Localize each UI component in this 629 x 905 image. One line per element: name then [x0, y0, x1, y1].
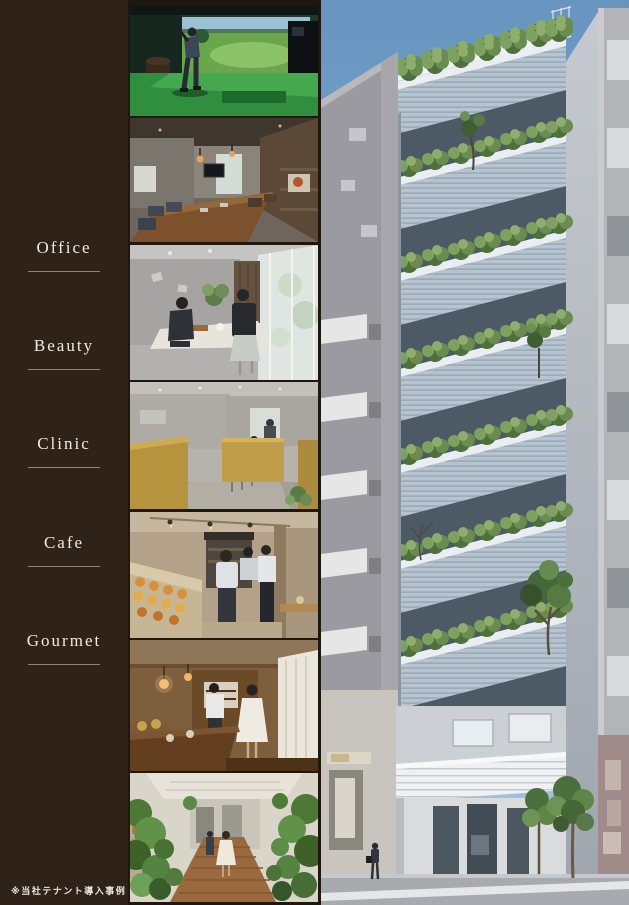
photo-green-entrance — [130, 773, 318, 902]
category-label-office: Office — [0, 237, 128, 259]
entrance-illustration — [130, 773, 318, 902]
building-rendering-illustration — [321, 0, 629, 905]
sidebar-item-gourmet: Gourmet — [0, 630, 128, 665]
photo-office-meeting-room — [130, 118, 318, 242]
meeting-room-illustration — [130, 118, 318, 242]
street — [321, 874, 629, 905]
tenant-photo-strip — [128, 0, 321, 905]
category-label-clinic: Clinic — [0, 433, 128, 455]
sidebar-item-beauty: Beauty — [0, 335, 128, 370]
sidebar-item-cafe: Cafe — [0, 532, 128, 567]
category-divider — [28, 467, 100, 468]
beauty-salon-illustration — [130, 245, 318, 380]
golf-simulator-illustration — [130, 5, 318, 116]
right-building — [598, 8, 629, 905]
category-divider — [28, 664, 100, 665]
sidebar-item-office: Office — [0, 237, 128, 272]
sidebar-item-clinic: Clinic — [0, 433, 128, 468]
bakery-illustration — [130, 512, 318, 638]
category-sidebar: Office Beauty Clinic Cafe Gourmet ※当社テナン… — [0, 0, 128, 905]
restaurant-illustration — [130, 640, 318, 771]
category-divider — [28, 566, 100, 567]
category-label-beauty: Beauty — [0, 335, 128, 357]
clinic-illustration — [130, 382, 318, 509]
building-rendering — [321, 0, 629, 905]
brochure-page: Office Beauty Clinic Cafe Gourmet ※当社テナン… — [0, 0, 629, 905]
left-building — [321, 52, 398, 880]
tenant-example-footnote: ※当社テナント導入事例 — [11, 884, 126, 897]
category-divider — [28, 369, 100, 370]
category-label-gourmet: Gourmet — [0, 630, 128, 652]
category-label-cafe: Cafe — [0, 532, 128, 554]
photo-beauty-salon — [130, 245, 318, 380]
podium — [396, 706, 566, 880]
category-divider — [28, 271, 100, 272]
photo-golf-simulator — [130, 5, 318, 116]
photo-gourmet-restaurant — [130, 640, 318, 771]
photo-clinic-booths — [130, 382, 318, 509]
photo-bakery-cafe — [130, 512, 318, 638]
